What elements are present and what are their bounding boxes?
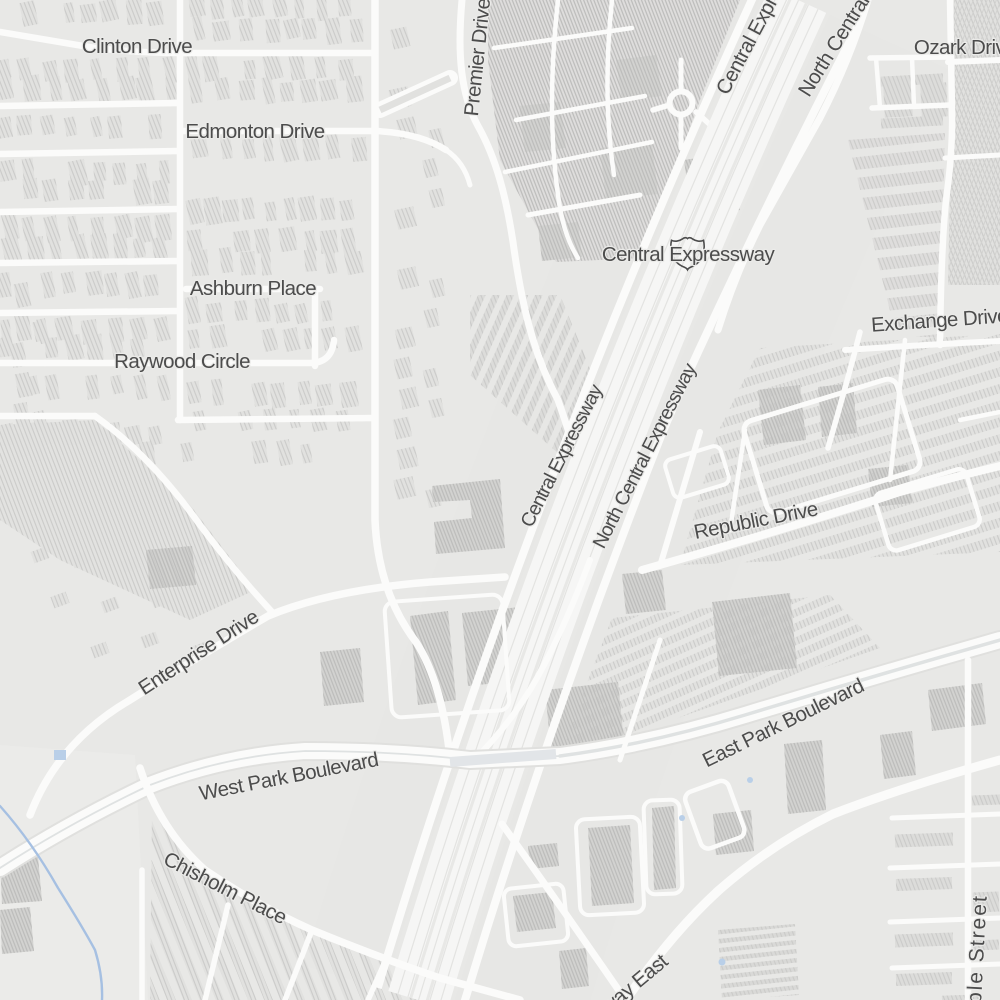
svg-text:Clinton Drive: Clinton Drive bbox=[82, 35, 192, 58]
svg-text:Central Expressway: Central Expressway bbox=[602, 243, 776, 266]
svg-text:Edmonton Drive: Edmonton Drive bbox=[185, 120, 324, 143]
svg-text:Ashburn Place: Ashburn Place bbox=[190, 277, 316, 300]
svg-text:Ozark Drive: Ozark Drive bbox=[914, 36, 1000, 59]
svg-text:Raywood Circle: Raywood Circle bbox=[114, 350, 250, 373]
